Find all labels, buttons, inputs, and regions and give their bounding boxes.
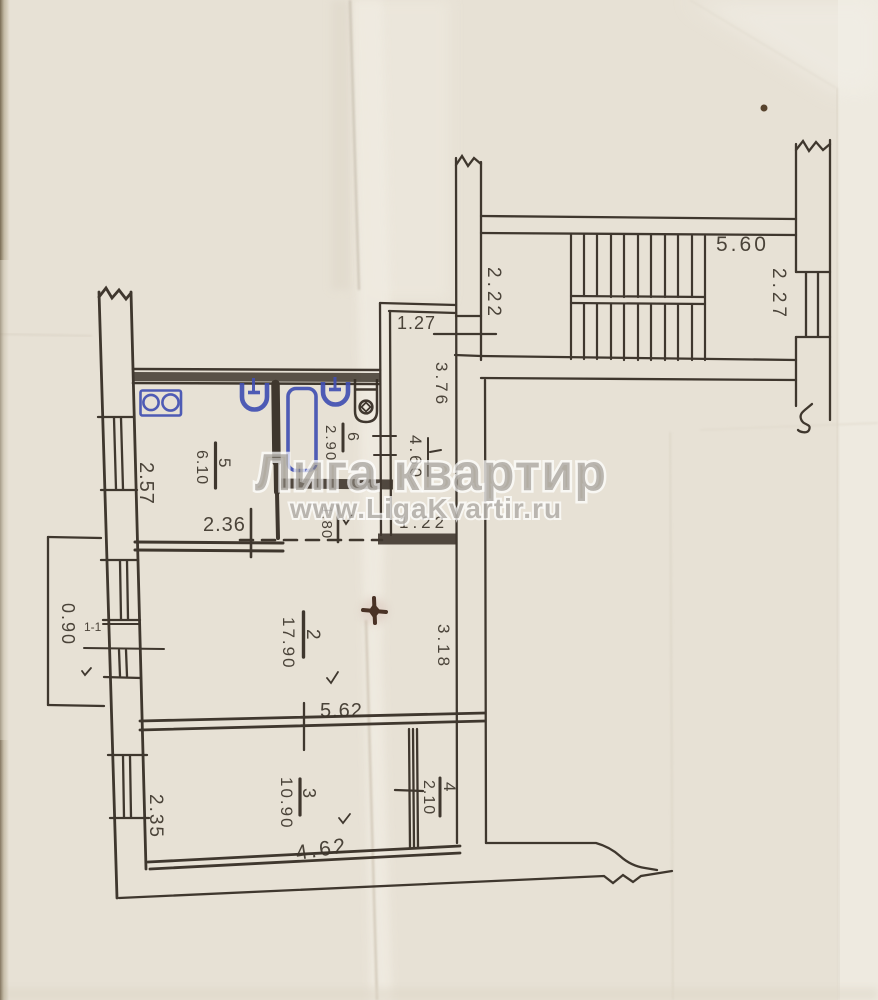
svg-text:2.10: 2.10 — [420, 780, 437, 815]
svg-text:3.18: 3.18 — [434, 624, 453, 669]
svg-text:3.76: 3.76 — [432, 362, 451, 407]
svg-text:2.22: 2.22 — [483, 267, 504, 320]
svg-text:2.35: 2.35 — [145, 794, 166, 839]
svg-text:1.27: 1.27 — [397, 313, 436, 333]
svg-text:3: 3 — [299, 788, 319, 798]
svg-text:1-1: 1-1 — [84, 620, 102, 634]
svg-text:5: 5 — [215, 458, 234, 467]
svg-text:4: 4 — [440, 782, 459, 791]
svg-text:0.90: 0.90 — [58, 603, 78, 646]
svg-text:www.LigaKvartir.ru: www.LigaKvartir.ru — [289, 493, 562, 524]
svg-text:2.57: 2.57 — [135, 462, 157, 505]
svg-text:2: 2 — [302, 629, 323, 640]
svg-text:5.60: 5.60 — [716, 233, 769, 256]
svg-text:10.90: 10.90 — [277, 777, 296, 830]
svg-text:6: 6 — [344, 432, 361, 441]
svg-text:6.10: 6.10 — [193, 450, 210, 485]
svg-text:5.62: 5.62 — [320, 700, 363, 722]
svg-text:2.36: 2.36 — [203, 514, 246, 536]
svg-text:17.90: 17.90 — [279, 617, 298, 670]
svg-text:2.27: 2.27 — [768, 268, 789, 321]
